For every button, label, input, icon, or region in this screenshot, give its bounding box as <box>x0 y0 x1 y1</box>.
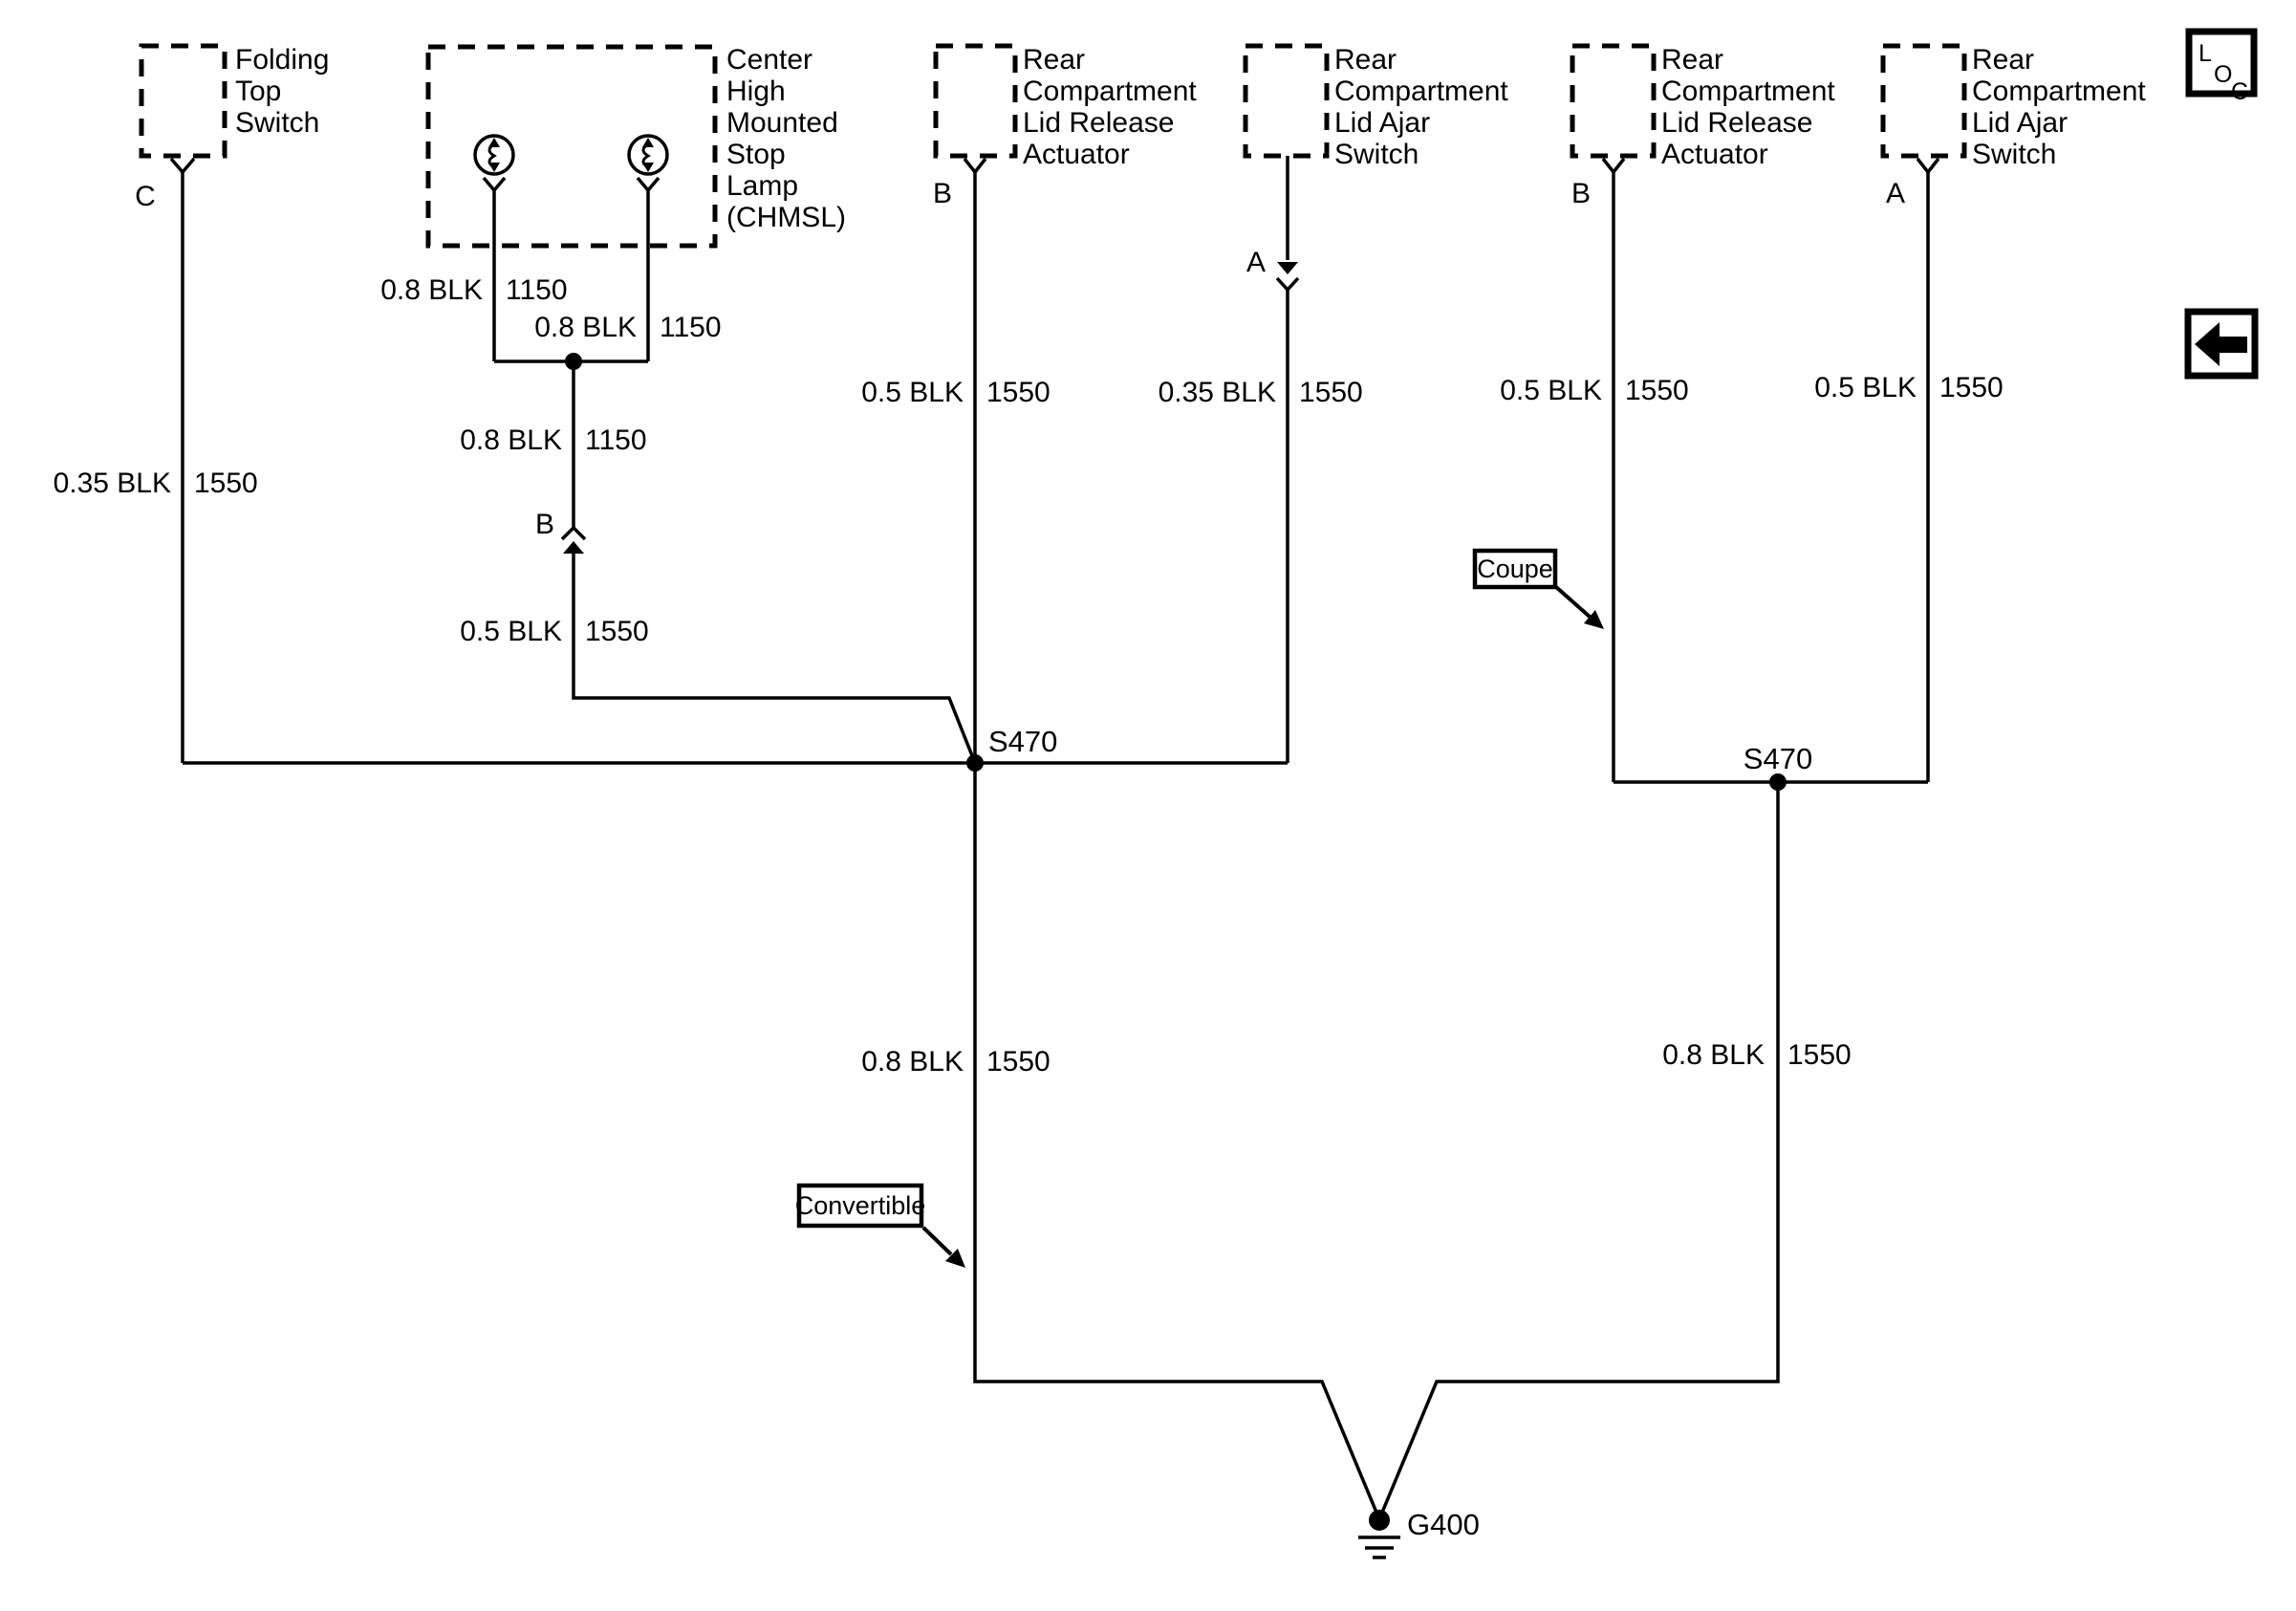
svg-text:Folding: Folding <box>235 44 329 76</box>
pin-chevron-mid-actuator-b <box>964 159 986 172</box>
svg-text:Lid Release: Lid Release <box>1023 107 1174 139</box>
svg-text:Lid Ajar: Lid Ajar <box>1334 107 1430 139</box>
connector-box-chmsl <box>428 47 715 246</box>
svg-text:0.35 BLK: 0.35 BLK <box>54 468 171 499</box>
svg-text:1150: 1150 <box>585 425 647 456</box>
pin-letter-a-right-ajar: A <box>1886 178 1905 209</box>
pin-letter-b-chmsl-inline: B <box>535 509 554 540</box>
svg-text:Stop: Stop <box>726 139 786 170</box>
svg-text:0.5 BLK: 0.5 BLK <box>861 377 964 408</box>
svg-text:0.8 BLK: 0.8 BLK <box>460 425 562 456</box>
wire-label-chmsl-to-splice: 0.5 BLK 1550 <box>460 616 649 647</box>
wire-mid-actuator-to-ground <box>975 172 1379 1519</box>
wire-label-right-actuator: 0.5 BLK 1550 <box>1500 375 1689 406</box>
connector-box-mid-lid-release-actuator <box>936 46 1015 156</box>
inline-connector-b <box>562 528 585 554</box>
svg-text:C: C <box>2231 78 2248 105</box>
pin-chevron-right-actuator-b <box>1603 159 1624 172</box>
svg-text:Top: Top <box>235 76 281 107</box>
connector-box-mid-lid-ajar-switch <box>1245 46 1327 156</box>
svg-text:1150: 1150 <box>660 312 722 343</box>
svg-text:L: L <box>2199 40 2212 67</box>
svg-text:Compartment: Compartment <box>1972 76 2146 107</box>
svg-text:1550: 1550 <box>986 377 1051 408</box>
svg-text:Compartment: Compartment <box>1334 76 1508 107</box>
convertible-callout-arrow <box>923 1228 951 1254</box>
svg-text:0.35 BLK: 0.35 BLK <box>1159 377 1276 408</box>
svg-text:Lid Ajar: Lid Ajar <box>1972 107 2068 139</box>
svg-text:1550: 1550 <box>986 1046 1051 1078</box>
splice-dot-left-s470 <box>966 754 984 772</box>
callout-coupe: Coupe <box>1475 551 1604 629</box>
wire-label-right-ajar: 0.5 BLK 1550 <box>1814 372 2004 403</box>
label-mid-lid-ajar-switch: Rear Compartment Lid Ajar Switch <box>1334 44 1508 170</box>
label-right-lid-ajar-switch: Rear Compartment Lid Ajar Switch <box>1972 44 2146 170</box>
label-mid-lid-release-actuator: Rear Compartment Lid Release Actuator <box>1023 44 1197 170</box>
label-chmsl: Center High Mounted Stop Lamp (CHMSL) <box>726 44 846 233</box>
svg-text:Rear: Rear <box>1972 44 2034 76</box>
lamp-symbol-left <box>475 136 513 174</box>
svg-text:(CHMSL): (CHMSL) <box>726 202 846 233</box>
splice-label-right-s470: S470 <box>1744 742 1812 775</box>
wire-label-convertible-ground: 0.8 BLK 1550 <box>861 1046 1051 1078</box>
callout-convertible: Convertible <box>795 1186 965 1268</box>
svg-text:0.5 BLK: 0.5 BLK <box>1814 372 1917 403</box>
svg-text:1150: 1150 <box>506 274 568 306</box>
wiring-diagram-page: Folding Top Switch Center High Mounted S… <box>0 0 2296 1611</box>
svg-text:Convertible: Convertible <box>795 1191 926 1220</box>
svg-text:1550: 1550 <box>1299 377 1363 408</box>
pin-letter-b-mid-actuator: B <box>933 178 952 209</box>
svg-text:Actuator: Actuator <box>1023 139 1130 170</box>
label-folding-top-switch: Folding Top Switch <box>235 44 329 139</box>
pin-chevron-right-ajar-a <box>1917 159 1939 172</box>
wire-label-coupe-ground: 0.8 BLK 1550 <box>1662 1039 1852 1071</box>
svg-text:0.8 BLK: 0.8 BLK <box>380 274 483 306</box>
connector-box-folding-top-switch <box>141 46 225 156</box>
label-right-lid-release-actuator: Rear Compartment Lid Release Actuator <box>1661 44 1835 170</box>
svg-text:1550: 1550 <box>1787 1039 1852 1071</box>
svg-text:Switch: Switch <box>1334 139 1419 170</box>
connector-box-right-lid-ajar-switch <box>1883 46 1964 156</box>
svg-text:O: O <box>2214 61 2232 88</box>
pin-letter-b-right-actuator: B <box>1571 178 1591 209</box>
wire-label-chmsl-left: 0.8 BLK 1150 <box>380 274 567 306</box>
wire-label-chmsl-right: 0.8 BLK 1150 <box>534 312 721 343</box>
lamp-symbol-right <box>629 136 667 174</box>
wire-label-chmsl-joined: 0.8 BLK 1150 <box>460 425 646 456</box>
svg-text:Mounted: Mounted <box>726 107 838 139</box>
svg-text:Switch: Switch <box>1972 139 2056 170</box>
svg-text:0.5 BLK: 0.5 BLK <box>1500 375 1602 406</box>
svg-text:0.8 BLK: 0.8 BLK <box>1662 1039 1765 1071</box>
wire-chmsl-to-splice <box>574 554 975 763</box>
wire-label-folding-top: 0.35 BLK 1550 <box>54 468 258 499</box>
pin-letter-c-folding-top: C <box>135 181 156 212</box>
svg-text:Lid Release: Lid Release <box>1661 107 1812 139</box>
svg-text:High: High <box>726 76 786 107</box>
svg-text:1550: 1550 <box>1939 372 2004 403</box>
svg-text:1550: 1550 <box>194 468 258 499</box>
pin-chevron-lamp-right <box>638 178 659 190</box>
connector-box-right-lid-release-actuator <box>1572 46 1654 156</box>
wire-label-mid-ajar: 0.35 BLK 1550 <box>1159 377 1363 408</box>
svg-text:1550: 1550 <box>585 616 649 647</box>
svg-text:Coupe: Coupe <box>1477 555 1553 583</box>
svg-text:Actuator: Actuator <box>1661 139 1768 170</box>
svg-text:Switch: Switch <box>235 107 319 139</box>
pin-letter-a-mid-ajar-inline: A <box>1246 247 1266 278</box>
svg-text:Rear: Rear <box>1334 44 1397 76</box>
splice-label-left-s470: S470 <box>988 725 1057 758</box>
svg-text:Compartment: Compartment <box>1661 76 1835 107</box>
ground-label-g400: G400 <box>1407 1508 1480 1541</box>
pin-chevron-lamp-left <box>484 178 505 190</box>
svg-text:Rear: Rear <box>1661 44 1723 76</box>
svg-text:Center: Center <box>726 44 812 76</box>
coupe-callout-arrow <box>1556 587 1590 617</box>
svg-text:Lamp: Lamp <box>726 170 798 202</box>
wire-label-mid-actuator: 0.5 BLK 1550 <box>861 377 1051 408</box>
svg-text:0.8 BLK: 0.8 BLK <box>861 1046 964 1078</box>
svg-text:0.5 BLK: 0.5 BLK <box>460 616 562 647</box>
inline-connector-a <box>1277 262 1298 290</box>
wire-right-splice-to-ground <box>1379 782 1778 1519</box>
svg-text:Rear: Rear <box>1023 44 1085 76</box>
svg-text:0.8 BLK: 0.8 BLK <box>534 312 637 343</box>
loc-icon[interactable]: L O C <box>2189 32 2254 105</box>
pin-chevron-folding-top-c <box>171 159 194 172</box>
svg-text:Compartment: Compartment <box>1023 76 1197 107</box>
svg-text:1550: 1550 <box>1625 375 1689 406</box>
back-arrow-icon[interactable] <box>2188 312 2255 376</box>
ground-symbol-g400 <box>1358 1510 1400 1557</box>
